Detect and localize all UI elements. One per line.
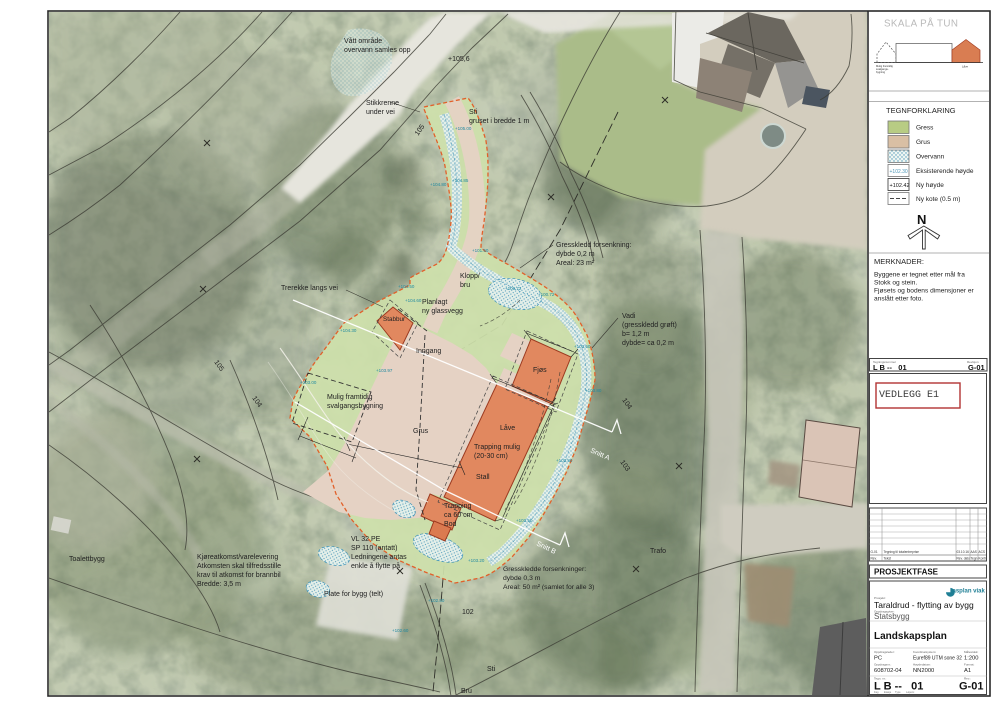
svg-text:ny glassvegg: ny glassvegg bbox=[422, 308, 463, 315]
svg-text:Landskapsplan: Landskapsplan bbox=[874, 631, 947, 642]
svg-text:Tekst: Tekst bbox=[884, 557, 892, 561]
svg-text:svalgangsbygning: svalgangsbygning bbox=[327, 403, 383, 410]
svg-text:Høydedatum:: Høydedatum: bbox=[913, 663, 931, 667]
svg-text:PC: PC bbox=[874, 656, 882, 662]
svg-text:VEDLEGG E1: VEDLEGG E1 bbox=[879, 390, 939, 401]
svg-text:Trafo: Trafo bbox=[650, 548, 666, 555]
svg-text:VL 32 PE: VL 32 PE bbox=[351, 536, 381, 543]
svg-text:102: 102 bbox=[462, 609, 474, 616]
svg-text:Inngang: Inngang bbox=[416, 348, 441, 355]
svg-text:Taraldrud - flytting av bygg: Taraldrud - flytting av bygg bbox=[874, 600, 974, 610]
svg-text:Trapping mulig: Trapping mulig bbox=[474, 444, 520, 451]
svg-text:enkle å flytte på: enkle å flytte på bbox=[351, 562, 400, 570]
svg-text:Overvann: Overvann bbox=[916, 154, 945, 161]
svg-text:AAS: AAS bbox=[971, 550, 977, 554]
svg-text:Stall: Stall bbox=[476, 474, 490, 481]
svg-text:Låve: Låve bbox=[500, 424, 515, 432]
svg-text:+103.80: +103.80 bbox=[585, 388, 602, 393]
svg-text:+100.72: +100.72 bbox=[505, 286, 522, 291]
svg-text:+102.80: +102.80 bbox=[428, 598, 445, 603]
svg-text:+103.80: +103.80 bbox=[556, 458, 573, 463]
svg-text:Kontr.: Kontr. bbox=[979, 557, 988, 561]
svg-text:dybde 0,3 m: dybde 0,3 m bbox=[503, 575, 541, 582]
svg-text:Ledningene antas: Ledningene antas bbox=[351, 554, 407, 561]
svg-text:SKALA PÅ TUN: SKALA PÅ TUN bbox=[884, 19, 958, 30]
svg-text:Type: Type bbox=[895, 690, 901, 694]
svg-text:Rev. dato: Rev. dato bbox=[957, 557, 971, 561]
svg-text:Stikkrenne: Stikkrenne bbox=[366, 100, 399, 107]
svg-text:Fjøs: Fjøs bbox=[533, 367, 547, 374]
svg-text:ACS: ACS bbox=[979, 550, 986, 554]
svg-text:asplan viak: asplan viak bbox=[953, 589, 986, 595]
svg-text:608702-04: 608702-04 bbox=[874, 668, 902, 674]
svg-text:dybde= ca 0,2 m: dybde= ca 0,2 m bbox=[622, 340, 674, 347]
svg-text:Oppdragsleder:: Oppdragsleder: bbox=[874, 650, 895, 654]
svg-text:Euref89 UTM sone 32: Euref89 UTM sone 32 bbox=[913, 656, 962, 662]
svg-text:+104.30: +104.30 bbox=[340, 328, 357, 333]
svg-text:Vadi: Vadi bbox=[622, 313, 636, 320]
svg-text:Gresskledd forsenkning:: Gresskledd forsenkning: bbox=[556, 242, 632, 249]
svg-text:TEGNFORKLARING: TEGNFORKLARING bbox=[886, 106, 956, 115]
svg-text:Trerekke langs vei: Trerekke langs vei bbox=[281, 285, 338, 292]
svg-text:Trapping: Trapping bbox=[444, 503, 471, 510]
svg-text:Statsbygg: Statsbygg bbox=[874, 612, 910, 621]
svg-text:krav til atkomst for brannbil: krav til atkomst for brannbil bbox=[197, 572, 281, 579]
svg-text:+102.60: +102.60 bbox=[392, 628, 409, 633]
svg-text:+103.60: +103.60 bbox=[574, 344, 591, 349]
svg-text:Gress: Gress bbox=[916, 125, 934, 132]
svg-text:Plate for bygg (telt): Plate for bygg (telt) bbox=[324, 591, 383, 598]
svg-text:Løpenr.: Løpenr. bbox=[906, 690, 915, 694]
svg-text:bygning: bygning bbox=[876, 70, 886, 74]
svg-text:(20-30 cm): (20-30 cm) bbox=[474, 453, 508, 460]
svg-text:Bru: Bru bbox=[461, 688, 472, 695]
svg-text:+103.50: +103.50 bbox=[516, 518, 533, 523]
svg-text:Format:: Format: bbox=[964, 663, 975, 667]
svg-text:Stokk og stein.: Stokk og stein. bbox=[874, 280, 917, 287]
svg-text:Toalettbygg: Toalettbygg bbox=[69, 556, 105, 563]
svg-text:03.10.16: 03.10.16 bbox=[957, 550, 970, 554]
svg-text:anslått etter foto.: anslått etter foto. bbox=[874, 295, 923, 303]
svg-text:PROSJEKTFASE: PROSJEKTFASE bbox=[874, 568, 939, 577]
svg-text:bru: bru bbox=[460, 282, 470, 289]
svg-text:Bod: Bod bbox=[444, 521, 457, 528]
svg-text:Ny kote (0.5 m): Ny kote (0.5 m) bbox=[916, 196, 960, 203]
svg-text:+103.00: +103.00 bbox=[300, 380, 317, 385]
svg-text:Gresskledde forsenkninger:: Gresskledde forsenkninger: bbox=[503, 566, 586, 573]
svg-text:MERKNADER:: MERKNADER: bbox=[874, 257, 924, 266]
svg-text:+104.85: +104.85 bbox=[452, 178, 469, 183]
svg-text:Låve: Låve bbox=[962, 65, 969, 69]
svg-text:Eksisterende høyde: Eksisterende høyde bbox=[916, 168, 974, 175]
svg-text:1:200: 1:200 bbox=[964, 656, 979, 662]
svg-text:SP 110 (antatt): SP 110 (antatt) bbox=[351, 545, 397, 552]
svg-text:Atkomsten skal tilfredsstille: Atkomsten skal tilfredsstille bbox=[197, 563, 281, 570]
svg-text:A1: A1 bbox=[964, 668, 971, 674]
svg-text:N: N bbox=[917, 212, 926, 227]
svg-text:overvann samles opp: overvann samles opp bbox=[344, 47, 411, 54]
svg-text:L B -- 01: L B -- 01 bbox=[873, 363, 907, 372]
svg-text:Grus: Grus bbox=[916, 139, 931, 146]
svg-text:ca 60 cm: ca 60 cm bbox=[444, 512, 473, 519]
svg-text:Målestokk:: Målestokk: bbox=[964, 650, 979, 654]
svg-text:NN2000: NN2000 bbox=[913, 668, 934, 674]
svg-text:Byggene er tegnet etter mål fr: Byggene er tegnet etter mål fra bbox=[874, 271, 965, 279]
svg-text:Bredde: 3,5 m: Bredde: 3,5 m bbox=[197, 581, 241, 588]
svg-text:+102.42: +102.42 bbox=[890, 183, 910, 189]
svg-text:Areal: 23 m²: Areal: 23 m² bbox=[556, 260, 595, 267]
svg-text:Sti: Sti bbox=[487, 666, 496, 673]
svg-text:Etasje: Etasje bbox=[884, 690, 892, 694]
svg-text:Klopp/: Klopp/ bbox=[460, 273, 480, 280]
svg-text:+104.80: +104.80 bbox=[430, 182, 447, 187]
svg-text:Areal: 50 m² (samlet for alle: Areal: 50 m² (samlet for alle 3) bbox=[503, 584, 594, 591]
svg-text:Rev.: Rev. bbox=[871, 557, 877, 561]
svg-text:Planlagt: Planlagt bbox=[422, 299, 447, 306]
svg-text:under vei: under vei bbox=[366, 109, 395, 116]
svg-text:Oppdragsnr.:: Oppdragsnr.: bbox=[874, 663, 892, 667]
svg-text:+101.50: +101.50 bbox=[472, 248, 489, 253]
svg-text:+103.20: +103.20 bbox=[468, 558, 485, 563]
svg-text:G-01: G-01 bbox=[968, 363, 985, 372]
svg-text:Koordinatsystem:: Koordinatsystem: bbox=[913, 650, 936, 654]
svg-text:Kjøreatkomst/varelevering: Kjøreatkomst/varelevering bbox=[197, 554, 278, 561]
svg-text:Tegn: Tegn bbox=[971, 557, 978, 561]
svg-text:+103.97: +103.97 bbox=[376, 368, 393, 373]
svg-text:Grus: Grus bbox=[413, 428, 429, 435]
svg-text:Sti: Sti bbox=[469, 109, 478, 116]
svg-text:+104.60: +104.60 bbox=[405, 298, 422, 303]
svg-text:gruset i bredde 1 m: gruset i bredde 1 m bbox=[469, 118, 529, 125]
svg-text:Mulig framtidig: Mulig framtidig bbox=[327, 394, 373, 401]
svg-text:b= 1,2 m: b= 1,2 m bbox=[622, 331, 650, 338]
svg-text:Fag: Fag bbox=[874, 690, 879, 694]
svg-text:Vått område: Vått område bbox=[344, 37, 382, 45]
svg-text:Tegning til totalentreprise: Tegning til totalentreprise bbox=[884, 550, 920, 554]
svg-text:+100.72: +100.72 bbox=[538, 292, 555, 297]
svg-text:Stabbur: Stabbur bbox=[383, 316, 405, 323]
svg-text:dybde 0,2 m: dybde 0,2 m bbox=[556, 251, 595, 258]
svg-text:+104.50: +104.50 bbox=[398, 284, 415, 289]
svg-text:Fjøsets og bodens dimensjoner: Fjøsets og bodens dimensjoner er bbox=[874, 288, 974, 295]
svg-text:G-01: G-01 bbox=[959, 681, 983, 693]
svg-text:+105.00: +105.00 bbox=[455, 126, 472, 131]
svg-text:G-01: G-01 bbox=[871, 550, 878, 554]
svg-text:Ny høyde: Ny høyde bbox=[916, 182, 944, 189]
svg-text:+102.30: +102.30 bbox=[890, 169, 908, 175]
svg-text:(gresskledd grøft): (gresskledd grøft) bbox=[622, 322, 677, 329]
svg-text:+105,6: +105,6 bbox=[448, 56, 470, 63]
